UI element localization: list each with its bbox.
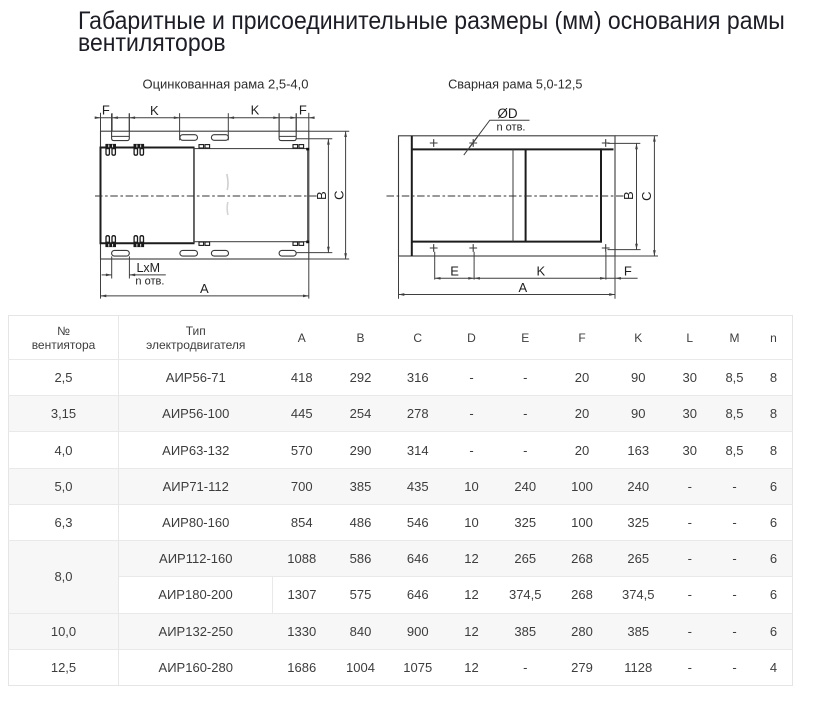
svg-text:n отв.: n отв. xyxy=(497,122,526,134)
svg-text:Сварная рама 5,0-12,5: Сварная рама 5,0-12,5 xyxy=(448,78,582,92)
svg-text:K: K xyxy=(251,103,260,118)
svg-text:A: A xyxy=(518,280,527,295)
svg-text:C: C xyxy=(639,192,654,201)
svg-text:F: F xyxy=(299,102,307,117)
svg-text:F: F xyxy=(102,103,110,118)
svg-text:F: F xyxy=(624,264,632,279)
svg-text:B: B xyxy=(621,191,636,200)
svg-text:B: B xyxy=(314,191,329,200)
svg-text:E: E xyxy=(450,263,459,278)
svg-text:C: C xyxy=(331,191,346,200)
svg-text:Оцинкованная рама 2,5-4,0: Оцинкованная рама 2,5-4,0 xyxy=(142,77,308,92)
svg-text:ØD: ØD xyxy=(497,106,518,121)
svg-text:A: A xyxy=(200,281,209,296)
svg-text:n отв.: n отв. xyxy=(135,276,164,288)
svg-text:LxM: LxM xyxy=(136,261,160,275)
svg-text:K: K xyxy=(536,263,545,278)
svg-text:K: K xyxy=(150,103,159,118)
